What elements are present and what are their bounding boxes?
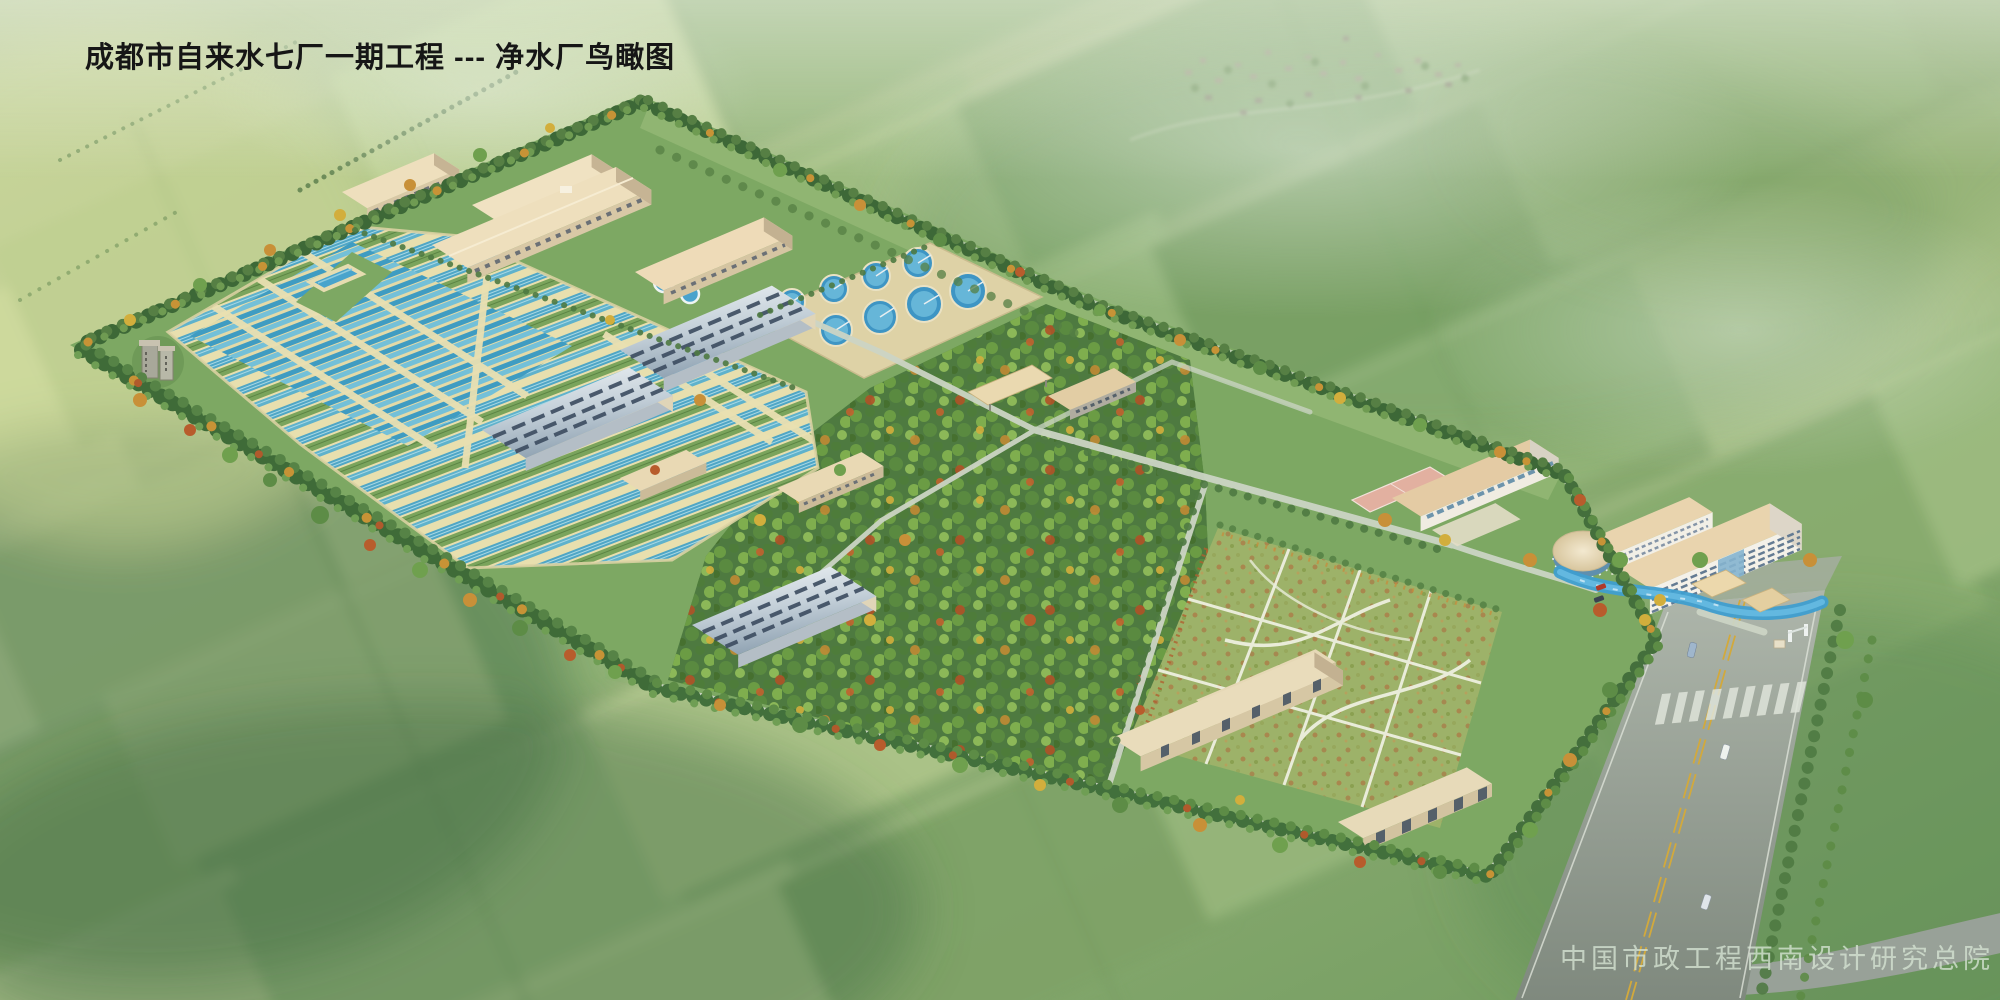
birds-eye-render: 成都市自来水七厂一期工程 --- 净水厂鸟瞰图 中国市政工程西南设计研究总院 [0, 0, 2000, 1000]
credit-text: 中国市政工程西南设计研究总院 [1560, 937, 1994, 976]
page-title: 成都市自来水七厂一期工程 --- 净水厂鸟瞰图 [85, 34, 675, 76]
aerial-scene [0, 0, 2000, 1000]
